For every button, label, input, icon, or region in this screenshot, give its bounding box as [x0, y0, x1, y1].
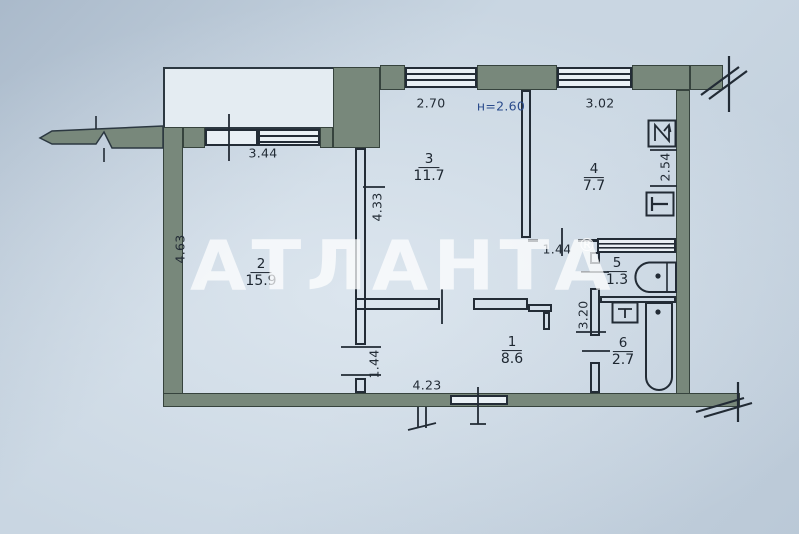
- toilet-icon-dot: [655, 273, 660, 278]
- floorplan-photo: 3.44 4.63 2.70 н=2.60 3.02 4.33 2.54 1.4…: [0, 0, 799, 534]
- fridge-icon-glyph: [655, 125, 671, 141]
- washbasin-icon-glyph: [618, 309, 632, 318]
- stove-icon-glyph: [652, 197, 668, 211]
- watermark: Атланта: [190, 227, 616, 307]
- room1-door-ticks: [341, 347, 381, 375]
- dim-ticks-kitchen-depth: [650, 150, 677, 186]
- bathtub-icon-dot: [655, 309, 660, 314]
- bathtub-icon: [646, 303, 672, 390]
- watermark-registered-icon: ®: [578, 235, 596, 256]
- wall-break-left-arm: [40, 126, 163, 148]
- toilet-icon: [635, 263, 676, 293]
- entrance-door-leaf: [470, 387, 486, 424]
- wall-break-bottom-right-slashes: [696, 398, 752, 417]
- wall-break-top-right-slashes: [701, 67, 747, 99]
- bottom-wall-stub-break: [408, 407, 436, 430]
